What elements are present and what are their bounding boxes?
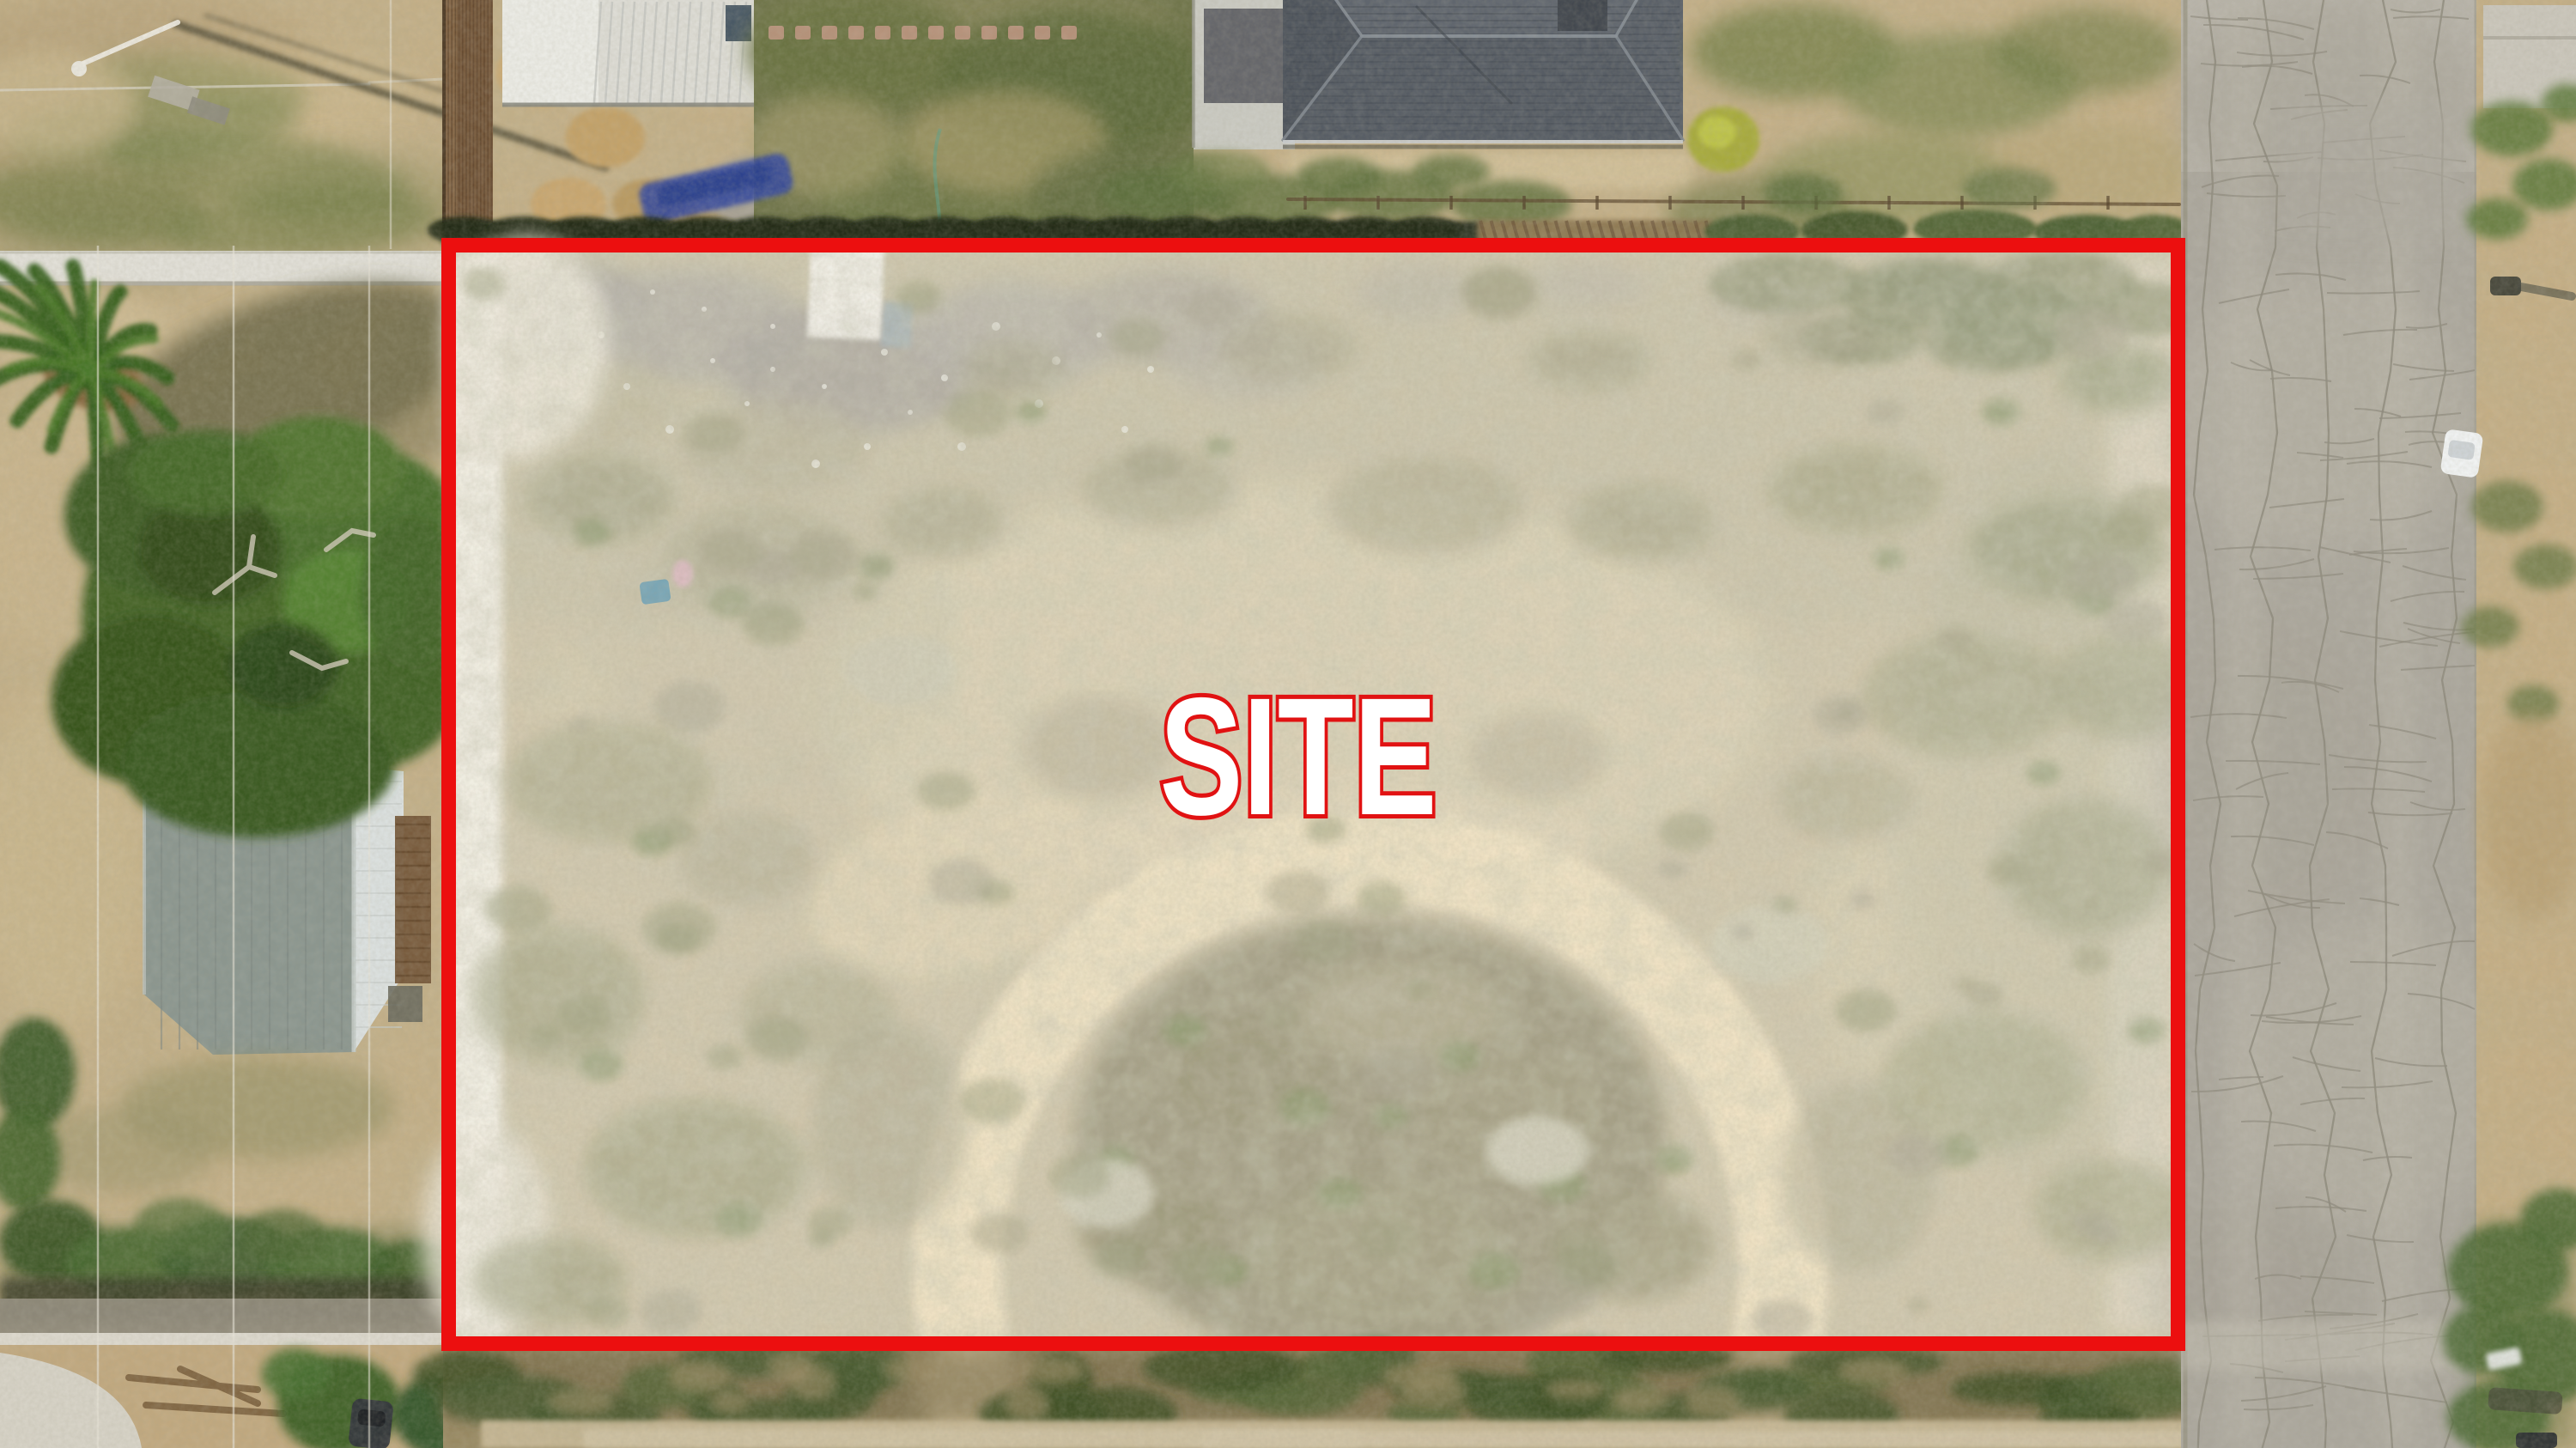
- svg-text:SITE: SITE: [1160, 663, 1437, 850]
